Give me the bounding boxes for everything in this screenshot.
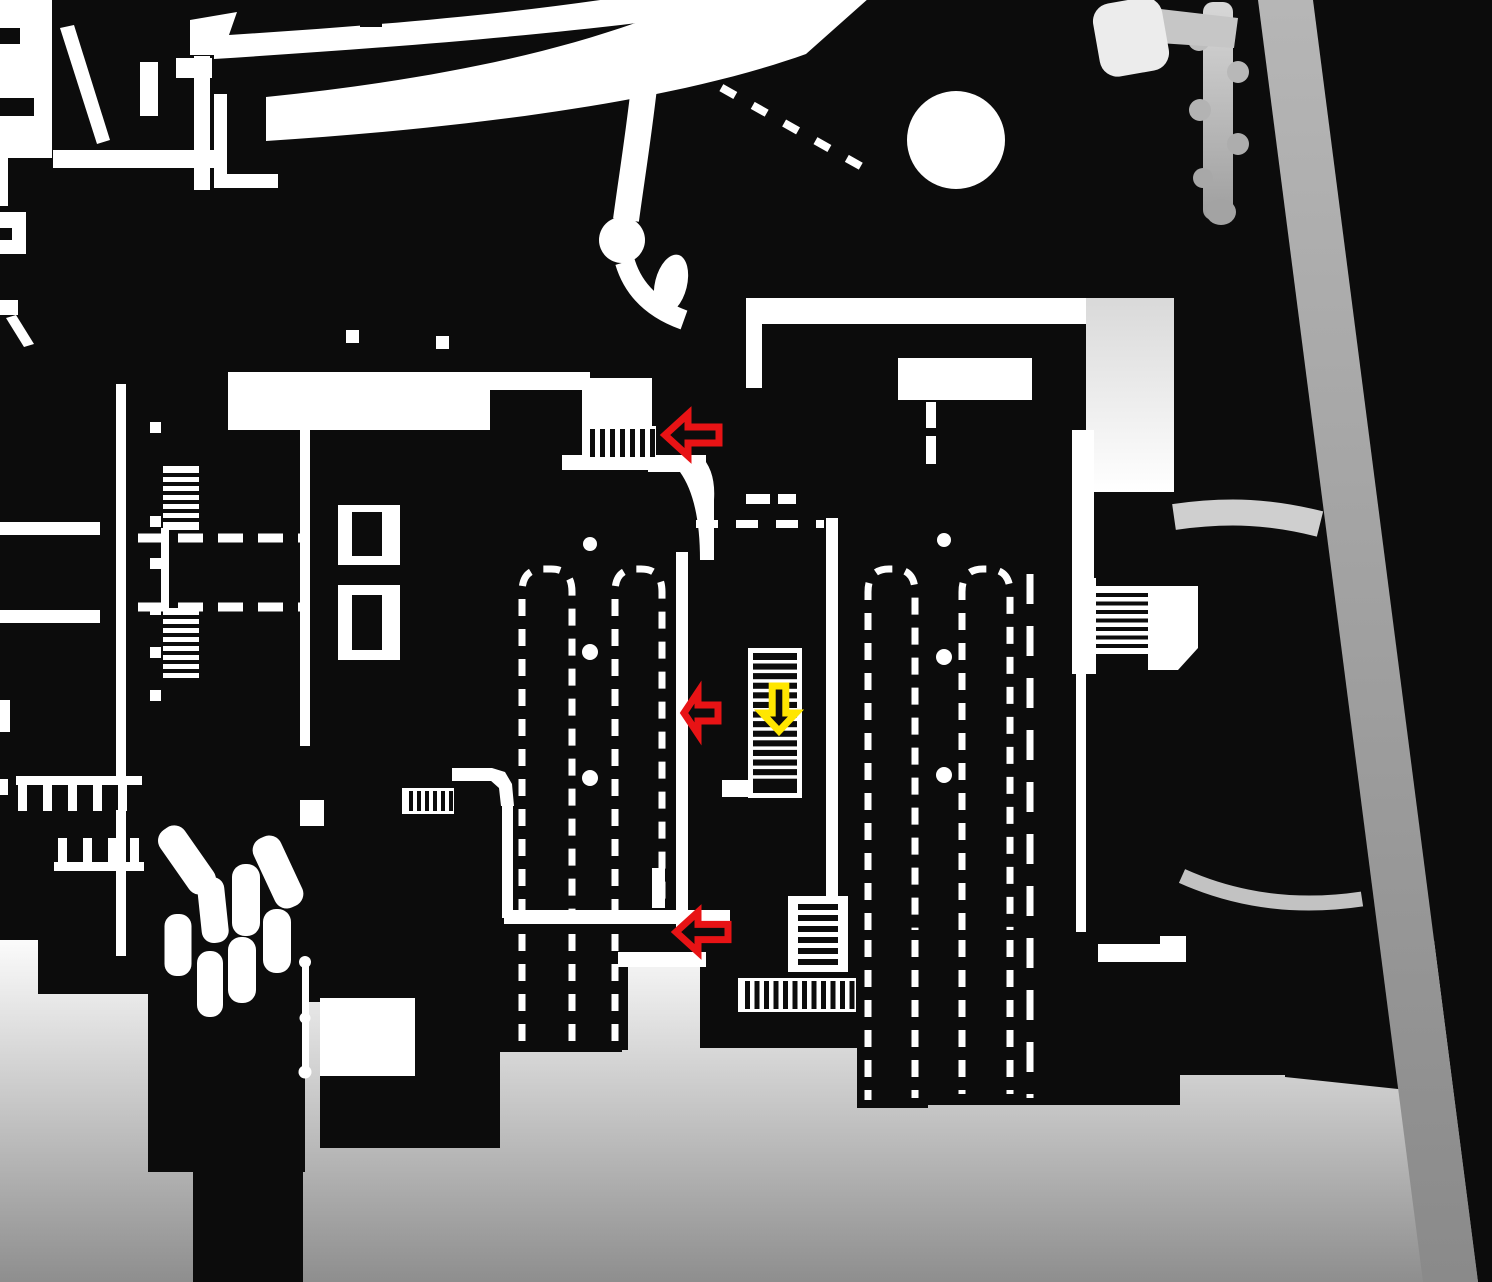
hatched-walkway <box>738 978 856 1012</box>
staircase-right <box>1096 586 1148 654</box>
landing-pad <box>1090 0 1172 80</box>
staircase-bottom <box>788 896 848 972</box>
staircase-ladder-upper-left <box>163 466 199 530</box>
staircase-upper <box>582 426 656 460</box>
landmark-circle <box>907 91 1005 189</box>
level-map <box>0 0 1492 1282</box>
staircase-small-left <box>402 788 454 814</box>
staircase-ladder-lower-left <box>163 608 199 678</box>
